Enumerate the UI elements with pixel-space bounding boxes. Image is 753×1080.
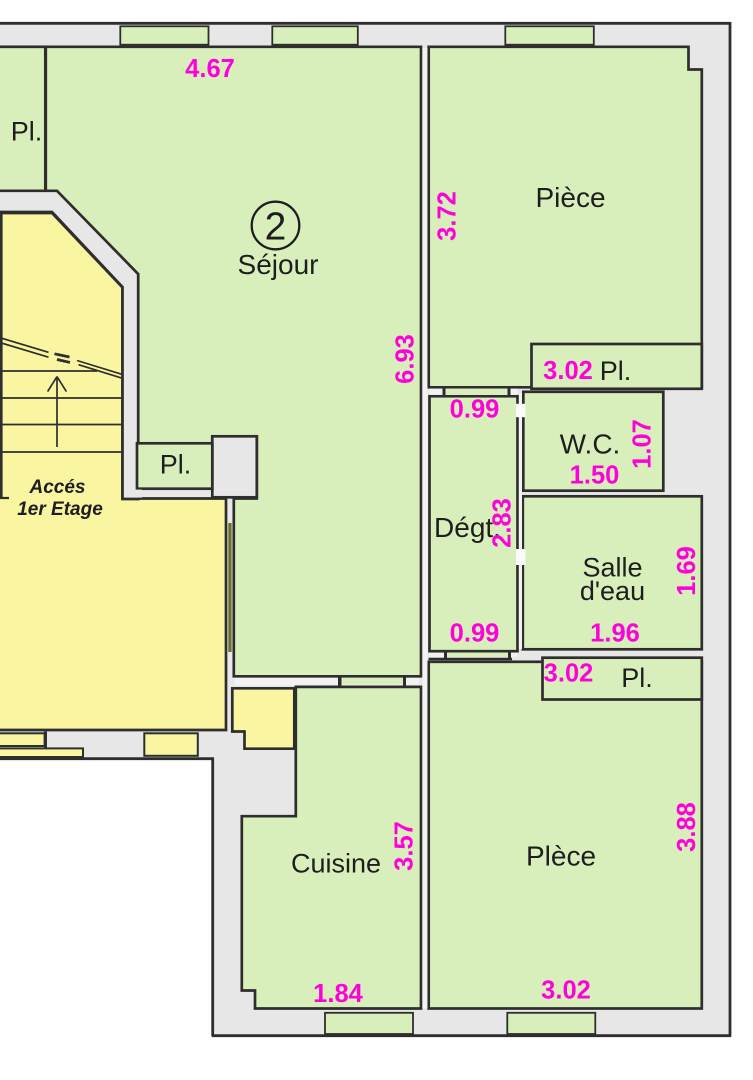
svg-text:3.02: 3.02	[543, 357, 593, 385]
svg-text:Cuisine: Cuisine	[291, 849, 381, 879]
svg-text:2.83: 2.83	[489, 498, 517, 548]
svg-text:Pl.: Pl.	[600, 356, 632, 386]
svg-text:Pl.: Pl.	[621, 663, 653, 693]
svg-text:1.84: 1.84	[313, 980, 363, 1008]
svg-text:d'eau: d'eau	[580, 576, 645, 606]
svg-text:1.96: 1.96	[590, 620, 640, 648]
svg-text:1.50: 1.50	[570, 462, 620, 490]
svg-text:Pl.: Pl.	[11, 117, 43, 147]
svg-text:3.72: 3.72	[434, 191, 462, 241]
svg-text:3.88: 3.88	[673, 802, 701, 852]
svg-text:4.67: 4.67	[185, 55, 235, 83]
svg-text:6.93: 6.93	[392, 334, 420, 384]
svg-text:3.02: 3.02	[544, 660, 594, 688]
svg-text:1.07: 1.07	[629, 419, 657, 469]
svg-text:1er Etage: 1er Etage	[17, 499, 103, 520]
svg-text:1.69: 1.69	[673, 546, 701, 596]
svg-text:0.99: 0.99	[450, 396, 500, 424]
svg-text:0.99: 0.99	[450, 620, 500, 648]
svg-text:Pièce: Pièce	[535, 182, 605, 213]
svg-text:3.57: 3.57	[391, 821, 419, 871]
svg-text:Séjour: Séjour	[238, 249, 319, 280]
svg-text:W.C.: W.C.	[560, 429, 621, 460]
svg-text:Plèce: Plèce	[526, 841, 596, 872]
svg-text:2: 2	[265, 206, 287, 249]
svg-text:Accés: Accés	[29, 477, 86, 498]
svg-text:Pl.: Pl.	[160, 450, 192, 480]
svg-text:3.02: 3.02	[541, 977, 591, 1005]
